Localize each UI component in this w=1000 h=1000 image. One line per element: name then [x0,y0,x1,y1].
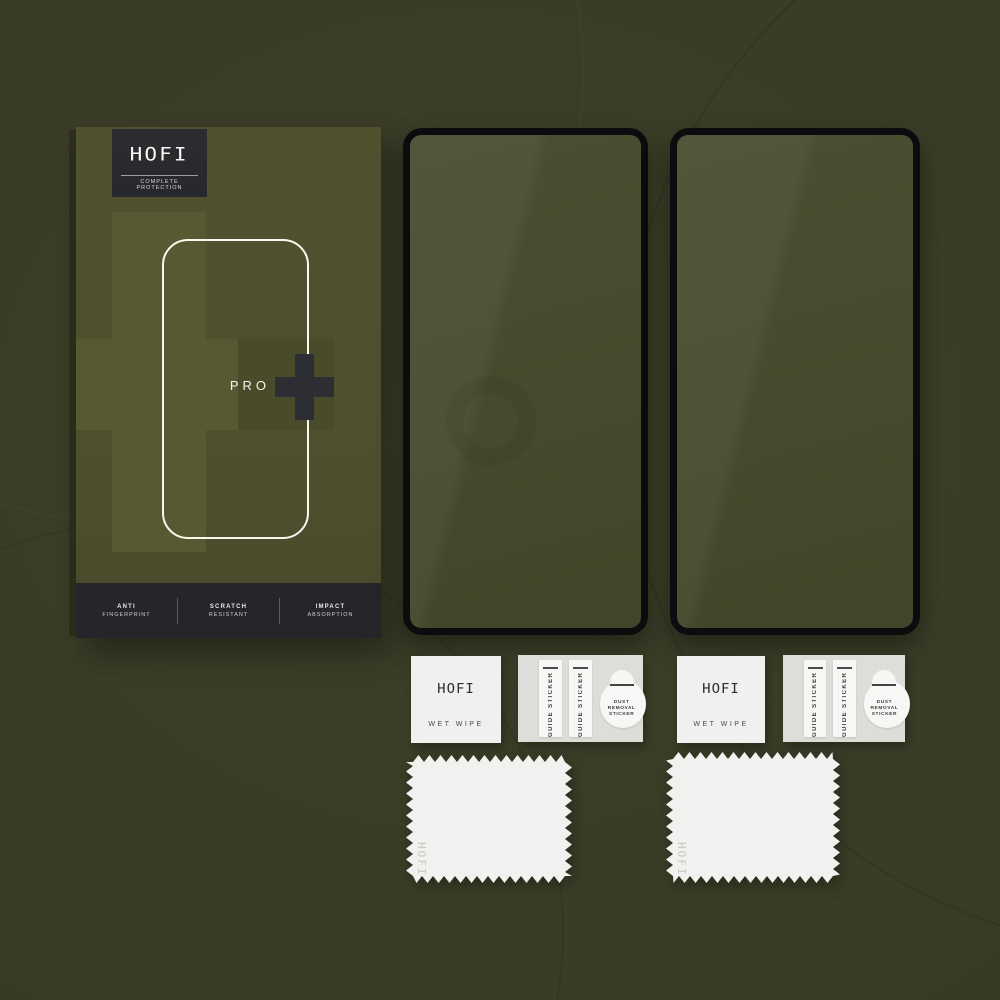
microfiber-cloth-2: HOFI [666,752,840,888]
feature-strip: ANTI FINGERPRINT SCRATCH RESISTANT IMPAC… [76,583,381,638]
dust-removal-sticker: DUST REMOVAL STICKER [864,670,905,728]
feature-line: IMPACT [280,603,381,611]
hofi-logo: HOFI [130,143,189,165]
guide-sticker: GUIDE STICKER [569,660,592,737]
label-line: STICKER [609,712,634,717]
screen-protector-glass-2 [670,128,920,635]
guide-sticker: GUIDE STICKER [833,660,855,737]
screen-protector-glass-1 [403,128,648,635]
sticker-pull-line [872,684,896,686]
sticker-card-2: GUIDE STICKER GUIDE STICKER DUST REMOVAL… [783,655,905,742]
dust-removal-label: DUST REMOVAL STICKER [600,700,643,718]
feature-line: ABSORPTION [280,611,381,619]
sticker-card-1: GUIDE STICKER GUIDE STICKER DUST REMOVAL… [518,655,643,742]
glass-surface [410,135,641,628]
wet-wipe-label: WET WIPE [428,721,483,728]
dust-removal-sticker: DUST REMOVAL STICKER [600,670,643,728]
feature-line: ANTI [76,603,177,611]
feature-line: SCRATCH [178,603,279,611]
microfiber-cloth-1: HOFI [406,755,572,888]
cloth-zigzag-shape [666,752,840,883]
label-line: DUST REMOVAL [870,700,898,711]
feature-line: FINGERPRINT [76,611,177,619]
product-photo-backdrop: HOFI COMPLETE PROTECTION PRO ANTI FINGER… [0,0,1000,1000]
feature-anti-fingerprint: ANTI FINGERPRINT [76,603,177,619]
wet-wipe-packet-2: HOFI WET WIPE [677,656,765,743]
cloth-watermark: HOFI [415,842,428,877]
hofi-logo: HOFI [437,681,475,696]
brand-tagline: COMPLETE PROTECTION [121,175,199,197]
cloth-zigzag-shape [406,755,572,883]
feature-impact-absorption: IMPACT ABSORPTION [280,603,381,619]
guide-sticker-label: GUIDE STICKER [578,669,584,737]
sticker-pull-line [610,684,634,686]
brand-panel: HOFI COMPLETE PROTECTION [112,129,207,197]
dust-removal-label: DUST REMOVAL STICKER [864,700,905,718]
cloth-watermark: HOFI [675,842,688,877]
wet-wipe-label: WET WIPE [693,721,748,728]
feature-scratch-resistant: SCRATCH RESISTANT [178,603,279,619]
wet-wipe-packet-1: HOFI WET WIPE [411,656,501,743]
label-line: DUST REMOVAL [608,700,636,711]
guide-sticker-label: GUIDE STICKER [548,669,554,737]
plus-icon [295,354,314,420]
guide-sticker-label: GUIDE STICKER [842,669,848,737]
label-line: STICKER [872,712,897,717]
guide-sticker: GUIDE STICKER [804,660,826,737]
feature-line: RESISTANT [178,611,279,619]
pro-label: PRO [222,379,270,393]
guide-sticker-label: GUIDE STICKER [812,669,818,737]
hofi-logo: HOFI [702,681,740,696]
product-box: HOFI COMPLETE PROTECTION PRO ANTI FINGER… [76,127,381,638]
guide-sticker: GUIDE STICKER [539,660,562,737]
glass-surface [677,135,913,628]
